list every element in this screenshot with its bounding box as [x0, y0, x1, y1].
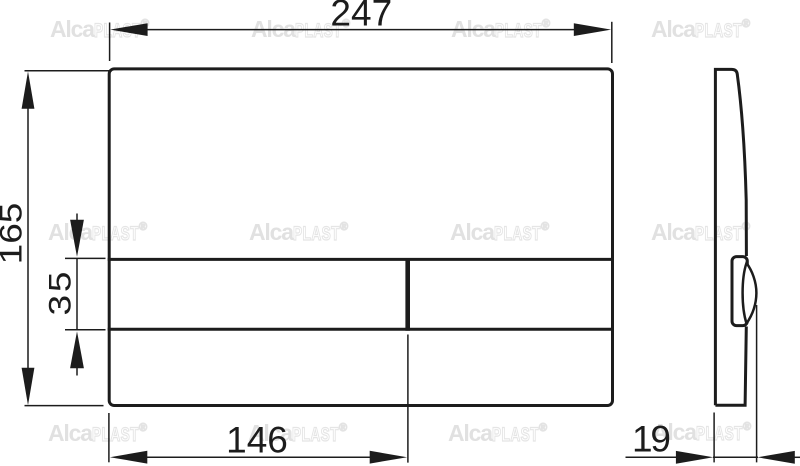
svg-text:165: 165: [0, 203, 29, 265]
svg-text:19: 19: [632, 418, 671, 459]
svg-text:247: 247: [330, 0, 392, 33]
svg-text:146: 146: [226, 420, 288, 461]
